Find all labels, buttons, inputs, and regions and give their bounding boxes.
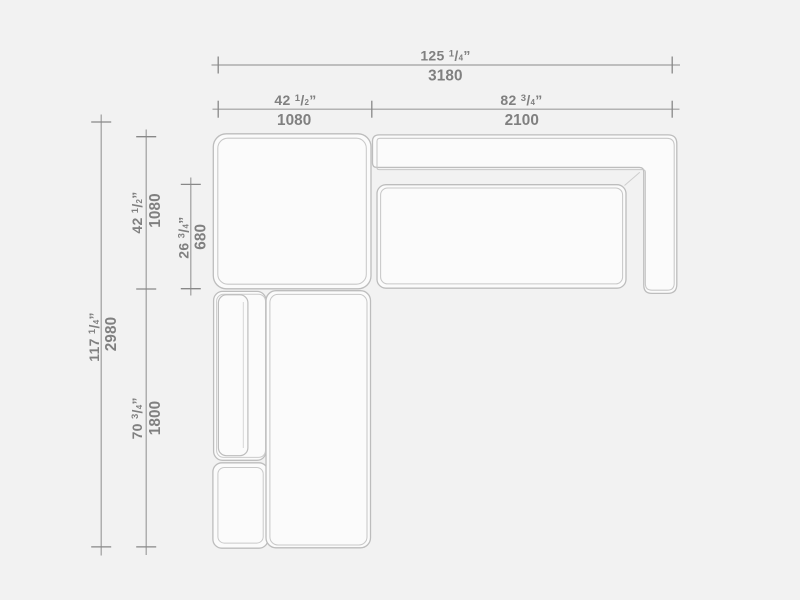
svg-text:1080: 1080	[277, 112, 311, 129]
svg-text:1800: 1800	[147, 401, 164, 435]
svg-text:2100: 2100	[505, 112, 539, 129]
svg-text:1080: 1080	[147, 193, 164, 227]
svg-text:2980: 2980	[103, 317, 120, 351]
svg-text:3180: 3180	[428, 67, 462, 84]
svg-text:117 1/4”: 117 1/4”	[86, 312, 102, 362]
svg-text:680: 680	[193, 224, 210, 250]
svg-text:125 1/4”: 125 1/4”	[420, 47, 470, 63]
